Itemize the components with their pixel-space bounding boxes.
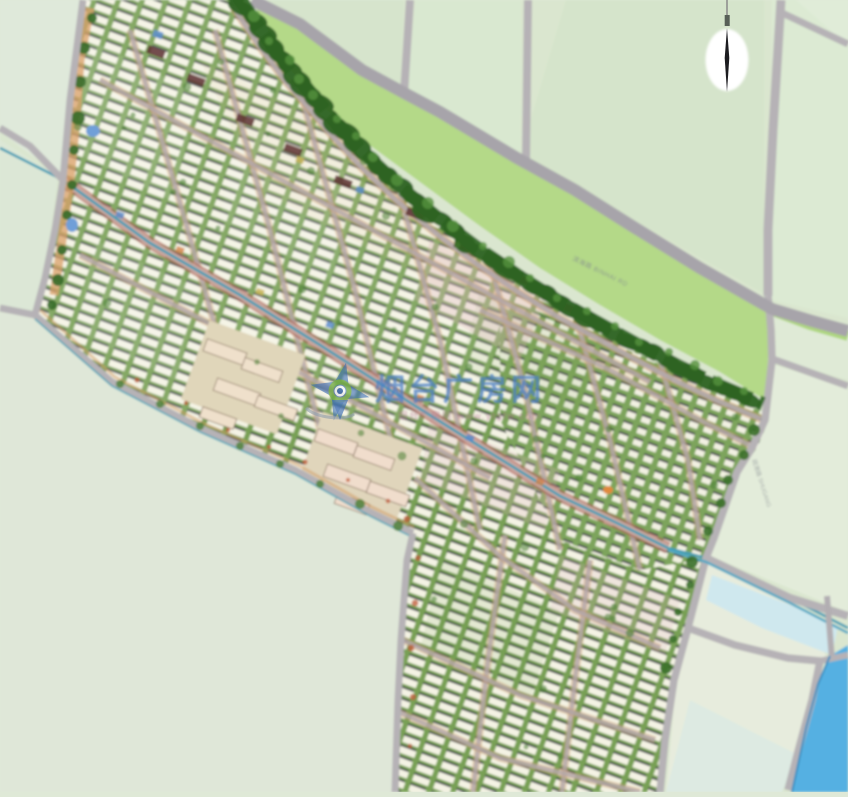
svg-text:烟台广房网 www.ytgfw.com: 烟台广房网 www.ytgfw.com <box>398 410 542 422</box>
svg-text:烟台广房网: 烟台广房网 <box>375 373 545 407</box>
